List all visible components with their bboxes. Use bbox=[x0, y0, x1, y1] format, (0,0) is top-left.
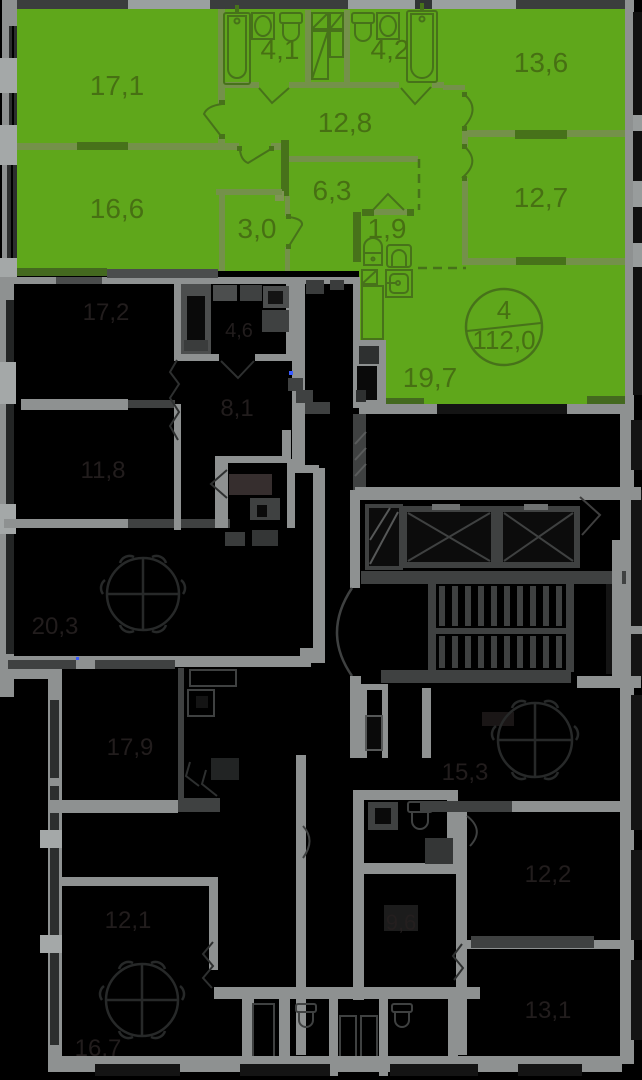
svg-text:4,2: 4,2 bbox=[371, 34, 410, 65]
svg-text:19,7: 19,7 bbox=[403, 362, 458, 393]
svg-text:17,1: 17,1 bbox=[90, 70, 145, 101]
svg-text:3,0: 3,0 bbox=[238, 213, 277, 244]
svg-text:16,6: 16,6 bbox=[90, 193, 145, 224]
svg-text:1,9: 1,9 bbox=[368, 213, 407, 244]
svg-text:112,0: 112,0 bbox=[472, 325, 535, 355]
svg-text:20,3: 20,3 bbox=[32, 613, 79, 640]
svg-text:11,8: 11,8 bbox=[81, 457, 126, 484]
svg-text:17,2: 17,2 bbox=[83, 299, 130, 326]
svg-text:13,1: 13,1 bbox=[525, 997, 572, 1024]
svg-text:8,1: 8,1 bbox=[220, 395, 253, 422]
svg-text:4,6: 4,6 bbox=[225, 320, 253, 342]
svg-text:6,3: 6,3 bbox=[313, 175, 352, 206]
svg-text:12,7: 12,7 bbox=[514, 182, 569, 213]
svg-text:12,2: 12,2 bbox=[525, 861, 572, 888]
svg-text:4,1: 4,1 bbox=[261, 34, 300, 65]
svg-text:12,8: 12,8 bbox=[318, 107, 373, 138]
svg-text:9,6: 9,6 bbox=[386, 910, 417, 935]
svg-text:12,1: 12,1 bbox=[105, 907, 152, 934]
svg-text:4: 4 bbox=[497, 295, 511, 325]
svg-text:17,9: 17,9 bbox=[107, 734, 154, 761]
svg-text:15,3: 15,3 bbox=[442, 759, 489, 786]
svg-text:13,6: 13,6 bbox=[514, 47, 569, 78]
